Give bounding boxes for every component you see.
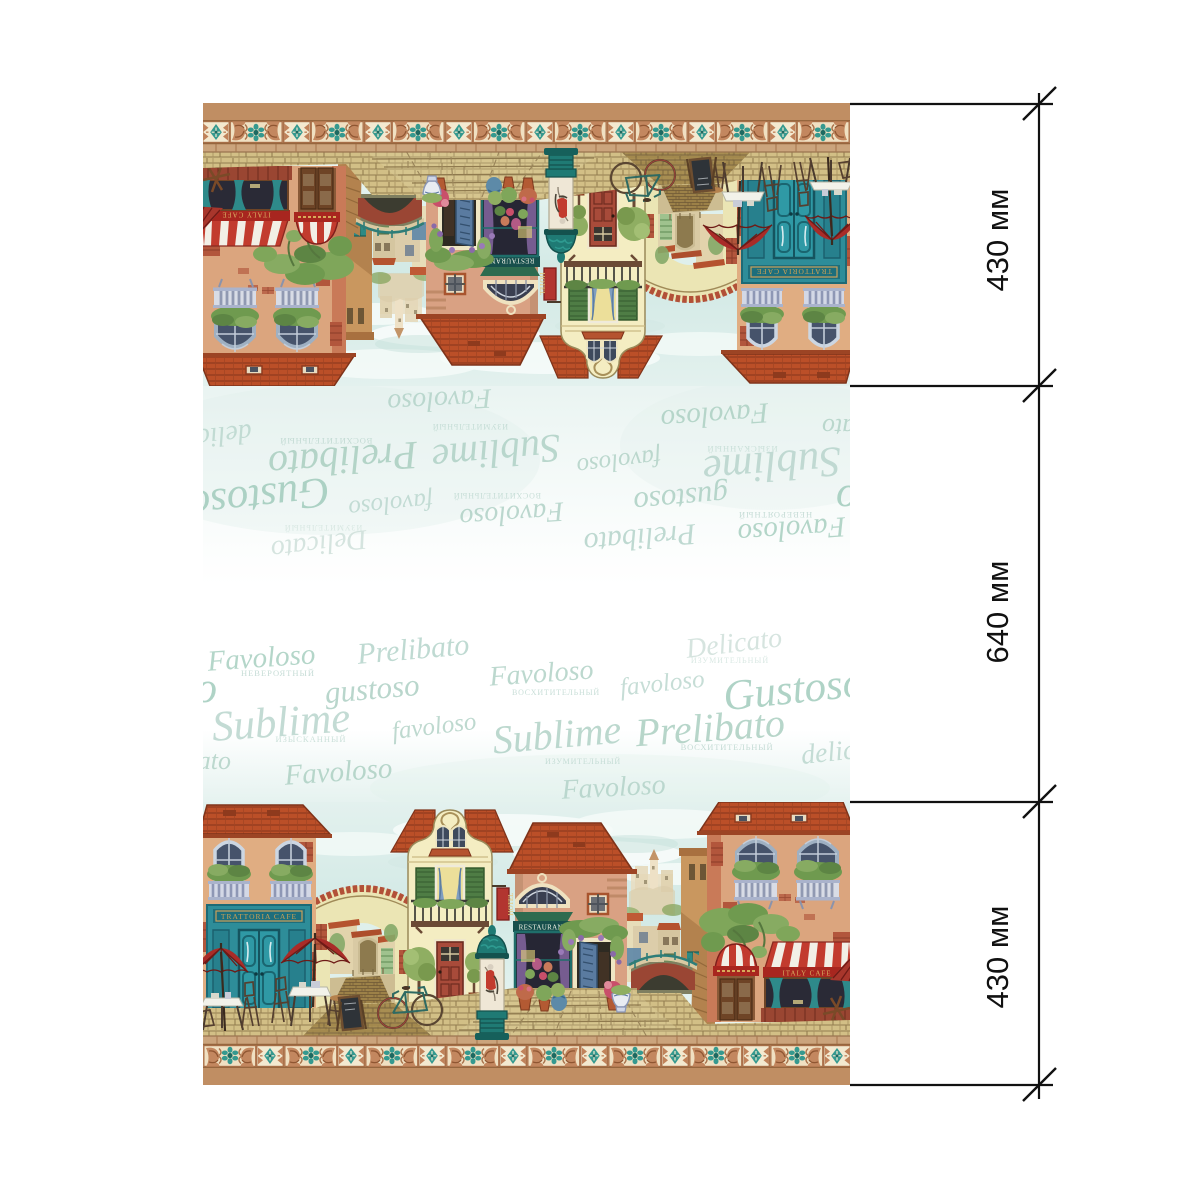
svg-text:430 мм: 430 мм (980, 906, 1015, 1009)
svg-text:640 мм: 640 мм (980, 561, 1015, 664)
svg-text:430 мм: 430 мм (980, 189, 1015, 292)
